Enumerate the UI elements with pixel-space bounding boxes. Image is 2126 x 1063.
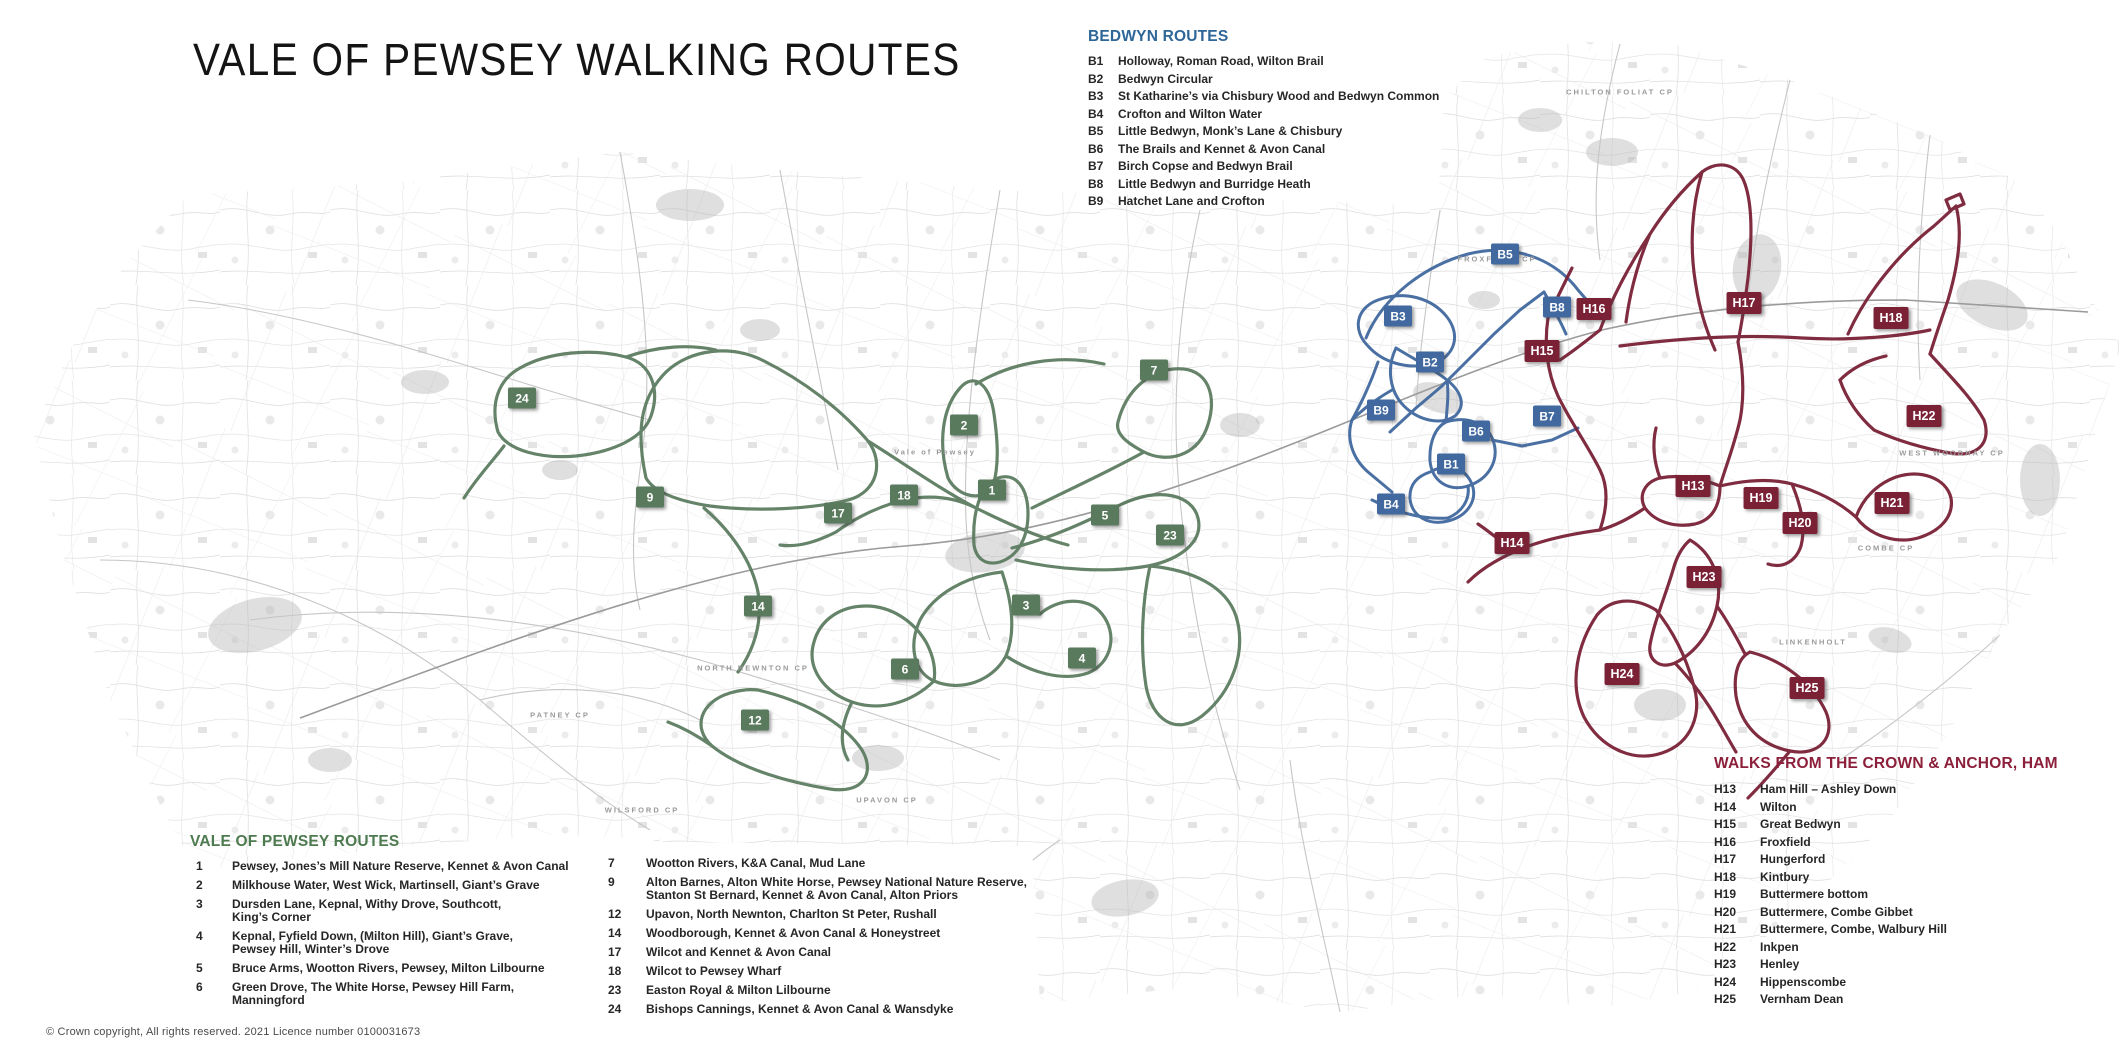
route-name: Buttermere, Combe Gibbet <box>1760 906 2058 919</box>
route-name: Holloway, Roman Road, Wilton Brail <box>1118 55 1439 68</box>
route-code: 5 <box>196 962 232 975</box>
route-name: Easton Royal & Milton Lilbourne <box>646 984 1048 997</box>
route-marker-b9: B9 <box>1367 400 1395 421</box>
poster: VALE OF PEWSEY WALKING ROUTES BEDWYN ROU… <box>0 0 2126 1063</box>
route-code: H13 <box>1714 783 1760 796</box>
route-marker-4: 4 <box>1068 648 1096 669</box>
route-code: 14 <box>608 927 646 940</box>
route-marker-b1: B1 <box>1437 454 1465 475</box>
route-code: H24 <box>1714 976 1760 989</box>
legend-heading-bedwyn: BEDWYN ROUTES <box>1088 28 1439 46</box>
route-name: Little Bedwyn and Burridge Heath <box>1118 178 1439 191</box>
route-name: Hatchet Lane and Crofton <box>1118 195 1439 208</box>
route-marker-h24: H24 <box>1605 663 1640 685</box>
route-code: H22 <box>1714 941 1760 954</box>
route-code: H18 <box>1714 871 1760 884</box>
legend-item: B4Crofton and Wilton Water <box>1088 108 1439 121</box>
route-code: H20 <box>1714 906 1760 919</box>
route-marker-7: 7 <box>1140 360 1168 381</box>
route-name: Inkpen <box>1760 941 2058 954</box>
legend-item: H17Hungerford <box>1714 853 2058 866</box>
route-name: Birch Copse and Bedwyn Brail <box>1118 160 1439 173</box>
route-name: Vernham Dean <box>1760 993 2058 1006</box>
page-title: VALE OF PEWSEY WALKING ROUTES <box>193 34 961 86</box>
route-code: B3 <box>1088 90 1118 103</box>
route-marker-5: 5 <box>1091 505 1119 526</box>
route-code: B6 <box>1088 143 1118 156</box>
route-marker-b7: B7 <box>1533 406 1561 427</box>
route-marker-h21: H21 <box>1875 492 1910 514</box>
route-marker-9: 9 <box>636 487 664 508</box>
route-code: H21 <box>1714 923 1760 936</box>
route-name: St Katharine’s via Chisbury Wood and Bed… <box>1118 90 1439 103</box>
legend-item: H22Inkpen <box>1714 941 2058 954</box>
legend-item: H24Hippenscombe <box>1714 976 2058 989</box>
legend-item: H15Great Bedwyn <box>1714 818 2058 831</box>
route-name: Alton Barnes, Alton White Horse, Pewsey … <box>646 876 1048 902</box>
route-marker-h18: H18 <box>1874 307 1909 329</box>
legend-item: 12Upavon, North Newnton, Charlton St Pet… <box>608 908 1048 921</box>
route-name: Great Bedwyn <box>1760 818 2058 831</box>
route-code: 23 <box>608 984 646 997</box>
legend-item: 2Milkhouse Water, West Wick, Martinsell,… <box>196 879 610 892</box>
route-marker-h25: H25 <box>1790 677 1825 699</box>
route-marker-h22: H22 <box>1907 405 1942 427</box>
legend-item: 1Pewsey, Jones’s Mill Nature Reserve, Ke… <box>196 860 610 873</box>
copyright-notice: © Crown copyright, All rights reserved. … <box>46 1026 420 1038</box>
legend-item: H23Henley <box>1714 958 2058 971</box>
map-place-label: COMBE CP <box>1858 544 1914 553</box>
route-name: Froxfield <box>1760 836 2058 849</box>
legend-item: B6The Brails and Kennet & Avon Canal <box>1088 143 1439 156</box>
route-name: Bruce Arms, Wootton Rivers, Pewsey, Milt… <box>232 962 610 975</box>
route-code: H23 <box>1714 958 1760 971</box>
route-name: Upavon, North Newnton, Charlton St Peter… <box>646 908 1048 921</box>
route-code: 12 <box>608 908 646 921</box>
route-code: B7 <box>1088 160 1118 173</box>
route-code: B2 <box>1088 73 1118 86</box>
route-name: Crofton and Wilton Water <box>1118 108 1439 121</box>
route-code: H25 <box>1714 993 1760 1006</box>
route-marker-14: 14 <box>744 596 772 617</box>
route-code: 7 <box>608 857 646 870</box>
route-marker-b5: B5 <box>1491 244 1519 265</box>
route-marker-h14: H14 <box>1495 532 1530 554</box>
route-name: Kintbury <box>1760 871 2058 884</box>
legend-item: 23Easton Royal & Milton Lilbourne <box>608 984 1048 997</box>
route-name: Wootton Rivers, K&A Canal, Mud Lane <box>646 857 1048 870</box>
legend-item: 3Dursden Lane, Kepnal, Withy Drove, Sout… <box>196 898 610 924</box>
legend-item: 17Wilcot and Kennet & Avon Canal <box>608 946 1048 959</box>
route-marker-23: 23 <box>1156 525 1184 546</box>
route-name: Woodborough, Kennet & Avon Canal & Honey… <box>646 927 1048 940</box>
legend-item: B3St Katharine’s via Chisbury Wood and B… <box>1088 90 1439 103</box>
route-marker-1: 1 <box>978 480 1006 501</box>
route-marker-b4: B4 <box>1377 494 1405 515</box>
legend-item: 5Bruce Arms, Wootton Rivers, Pewsey, Mil… <box>196 962 610 975</box>
route-name: Little Bedwyn, Monk’s Lane & Chisbury <box>1118 125 1439 138</box>
map-place-label: PATNEY CP <box>530 711 590 720</box>
legend-vale-heading-box: VALE OF PEWSEY ROUTES <box>190 833 399 851</box>
route-marker-b6: B6 <box>1462 421 1490 442</box>
legend-item: 24Bishops Cannings, Kennet & Avon Canal … <box>608 1003 1048 1016</box>
route-name: Hungerford <box>1760 853 2058 866</box>
route-code: 2 <box>196 879 232 892</box>
route-marker-h17: H17 <box>1727 292 1762 314</box>
legend-item: H20Buttermere, Combe Gibbet <box>1714 906 2058 919</box>
route-name: Wilton <box>1760 801 2058 814</box>
route-marker-12: 12 <box>741 710 769 731</box>
route-name: Dursden Lane, Kepnal, Withy Drove, South… <box>232 898 610 924</box>
route-marker-h19: H19 <box>1744 487 1779 509</box>
route-name: Pewsey, Jones’s Mill Nature Reserve, Ken… <box>232 860 610 873</box>
map-place-label: NORTH NEWNTON CP <box>697 664 809 673</box>
route-code: 18 <box>608 965 646 978</box>
route-name: Hippenscombe <box>1760 976 2058 989</box>
route-code: 24 <box>608 1003 646 1016</box>
route-marker-2: 2 <box>950 415 978 436</box>
route-code: B9 <box>1088 195 1118 208</box>
legend-item: H21Buttermere, Combe, Walbury Hill <box>1714 923 2058 936</box>
legend-bedwyn-routes: BEDWYN ROUTES B1Holloway, Roman Road, Wi… <box>1088 28 1439 213</box>
legend-item: H18Kintbury <box>1714 871 2058 884</box>
map-place-label: LINKENHOLT <box>1779 638 1847 647</box>
map-place-label: CHILTON FOLIAT CP <box>1566 88 1674 97</box>
legend-item: B1Holloway, Roman Road, Wilton Brail <box>1088 55 1439 68</box>
route-code: B5 <box>1088 125 1118 138</box>
legend-item: 14Woodborough, Kennet & Avon Canal & Hon… <box>608 927 1048 940</box>
map-place-label: WEST WOODHAY CP <box>1899 449 2004 458</box>
legend-items-vale-col1: 1Pewsey, Jones’s Mill Nature Reserve, Ke… <box>196 860 610 1013</box>
route-name: Wilcot and Kennet & Avon Canal <box>646 946 1048 959</box>
legend-item: B9Hatchet Lane and Crofton <box>1088 195 1439 208</box>
route-name: Kepnal, Fyfield Down, (Milton Hill), Gia… <box>232 930 610 956</box>
route-code: H19 <box>1714 888 1760 901</box>
route-marker-b8: B8 <box>1543 297 1571 318</box>
route-code: 6 <box>196 981 232 1007</box>
route-name: Wilcot to Pewsey Wharf <box>646 965 1048 978</box>
map-place-label: WILSFORD CP <box>605 806 680 815</box>
legend-item: B8Little Bedwyn and Burridge Heath <box>1088 178 1439 191</box>
legend-item: B5Little Bedwyn, Monk’s Lane & Chisbury <box>1088 125 1439 138</box>
route-code: 9 <box>608 876 646 902</box>
map-place-label: Vale of Pewsey <box>894 448 976 457</box>
route-code: H14 <box>1714 801 1760 814</box>
route-code: H17 <box>1714 853 1760 866</box>
route-name: Buttermere bottom <box>1760 888 2058 901</box>
legend-item: 4Kepnal, Fyfield Down, (Milton Hill), Gi… <box>196 930 610 956</box>
route-marker-h16: H16 <box>1577 298 1612 320</box>
map-place-label: UPAVON CP <box>856 796 917 805</box>
legend-item: H16Froxfield <box>1714 836 2058 849</box>
legend-item: 18Wilcot to Pewsey Wharf <box>608 965 1048 978</box>
route-code: H16 <box>1714 836 1760 849</box>
legend-item: 6Green Drove, The White Horse, Pewsey Hi… <box>196 981 610 1007</box>
legend-item: B2Bedwyn Circular <box>1088 73 1439 86</box>
route-marker-b2: B2 <box>1416 352 1444 373</box>
legend-item: H13Ham Hill – Ashley Down <box>1714 783 2058 796</box>
route-code: B8 <box>1088 178 1118 191</box>
legend-item: B7Birch Copse and Bedwyn Brail <box>1088 160 1439 173</box>
route-marker-3: 3 <box>1012 595 1040 616</box>
legend-item: H25Vernham Dean <box>1714 993 2058 1006</box>
route-marker-h20: H20 <box>1783 512 1818 534</box>
route-code: 1 <box>196 860 232 873</box>
legend-heading-ham: WALKS FROM THE CROWN & ANCHOR, HAM <box>1714 755 2058 773</box>
route-name: Bedwyn Circular <box>1118 73 1439 86</box>
route-marker-24: 24 <box>508 388 536 409</box>
route-code: 17 <box>608 946 646 959</box>
route-code: B4 <box>1088 108 1118 121</box>
legend-items-ham: H13Ham Hill – Ashley DownH14WiltonH15Gre… <box>1714 783 2058 1006</box>
route-name: The Brails and Kennet & Avon Canal <box>1118 143 1439 156</box>
route-marker-h23: H23 <box>1687 566 1722 588</box>
route-marker-h15: H15 <box>1525 340 1560 362</box>
legend-ham-walks: WALKS FROM THE CROWN & ANCHOR, HAM H13Ha… <box>1714 755 2058 1011</box>
route-code: B1 <box>1088 55 1118 68</box>
legend-heading-vale: VALE OF PEWSEY ROUTES <box>190 833 399 851</box>
route-name: Henley <box>1760 958 2058 971</box>
legend-item: 7Wootton Rivers, K&A Canal, Mud Lane <box>608 857 1048 870</box>
route-code: 4 <box>196 930 232 956</box>
route-marker-6: 6 <box>891 659 919 680</box>
route-name: Buttermere, Combe, Walbury Hill <box>1760 923 2058 936</box>
route-code: H15 <box>1714 818 1760 831</box>
route-marker-h13: H13 <box>1676 475 1711 497</box>
legend-item: 9Alton Barnes, Alton White Horse, Pewsey… <box>608 876 1048 902</box>
route-marker-18: 18 <box>890 485 918 506</box>
route-marker-17: 17 <box>824 503 852 524</box>
route-marker-b3: B3 <box>1384 306 1412 327</box>
legend-items-bedwyn: B1Holloway, Roman Road, Wilton BrailB2Be… <box>1088 55 1439 208</box>
legend-items-vale-col2: 7Wootton Rivers, K&A Canal, Mud Lane9Alt… <box>608 857 1048 1022</box>
route-name: Milkhouse Water, West Wick, Martinsell, … <box>232 879 610 892</box>
legend-item: H19Buttermere bottom <box>1714 888 2058 901</box>
route-name: Bishops Cannings, Kennet & Avon Canal & … <box>646 1003 1048 1016</box>
route-name: Green Drove, The White Horse, Pewsey Hil… <box>232 981 610 1007</box>
route-code: 3 <box>196 898 232 924</box>
legend-item: H14Wilton <box>1714 801 2058 814</box>
route-name: Ham Hill – Ashley Down <box>1760 783 2058 796</box>
